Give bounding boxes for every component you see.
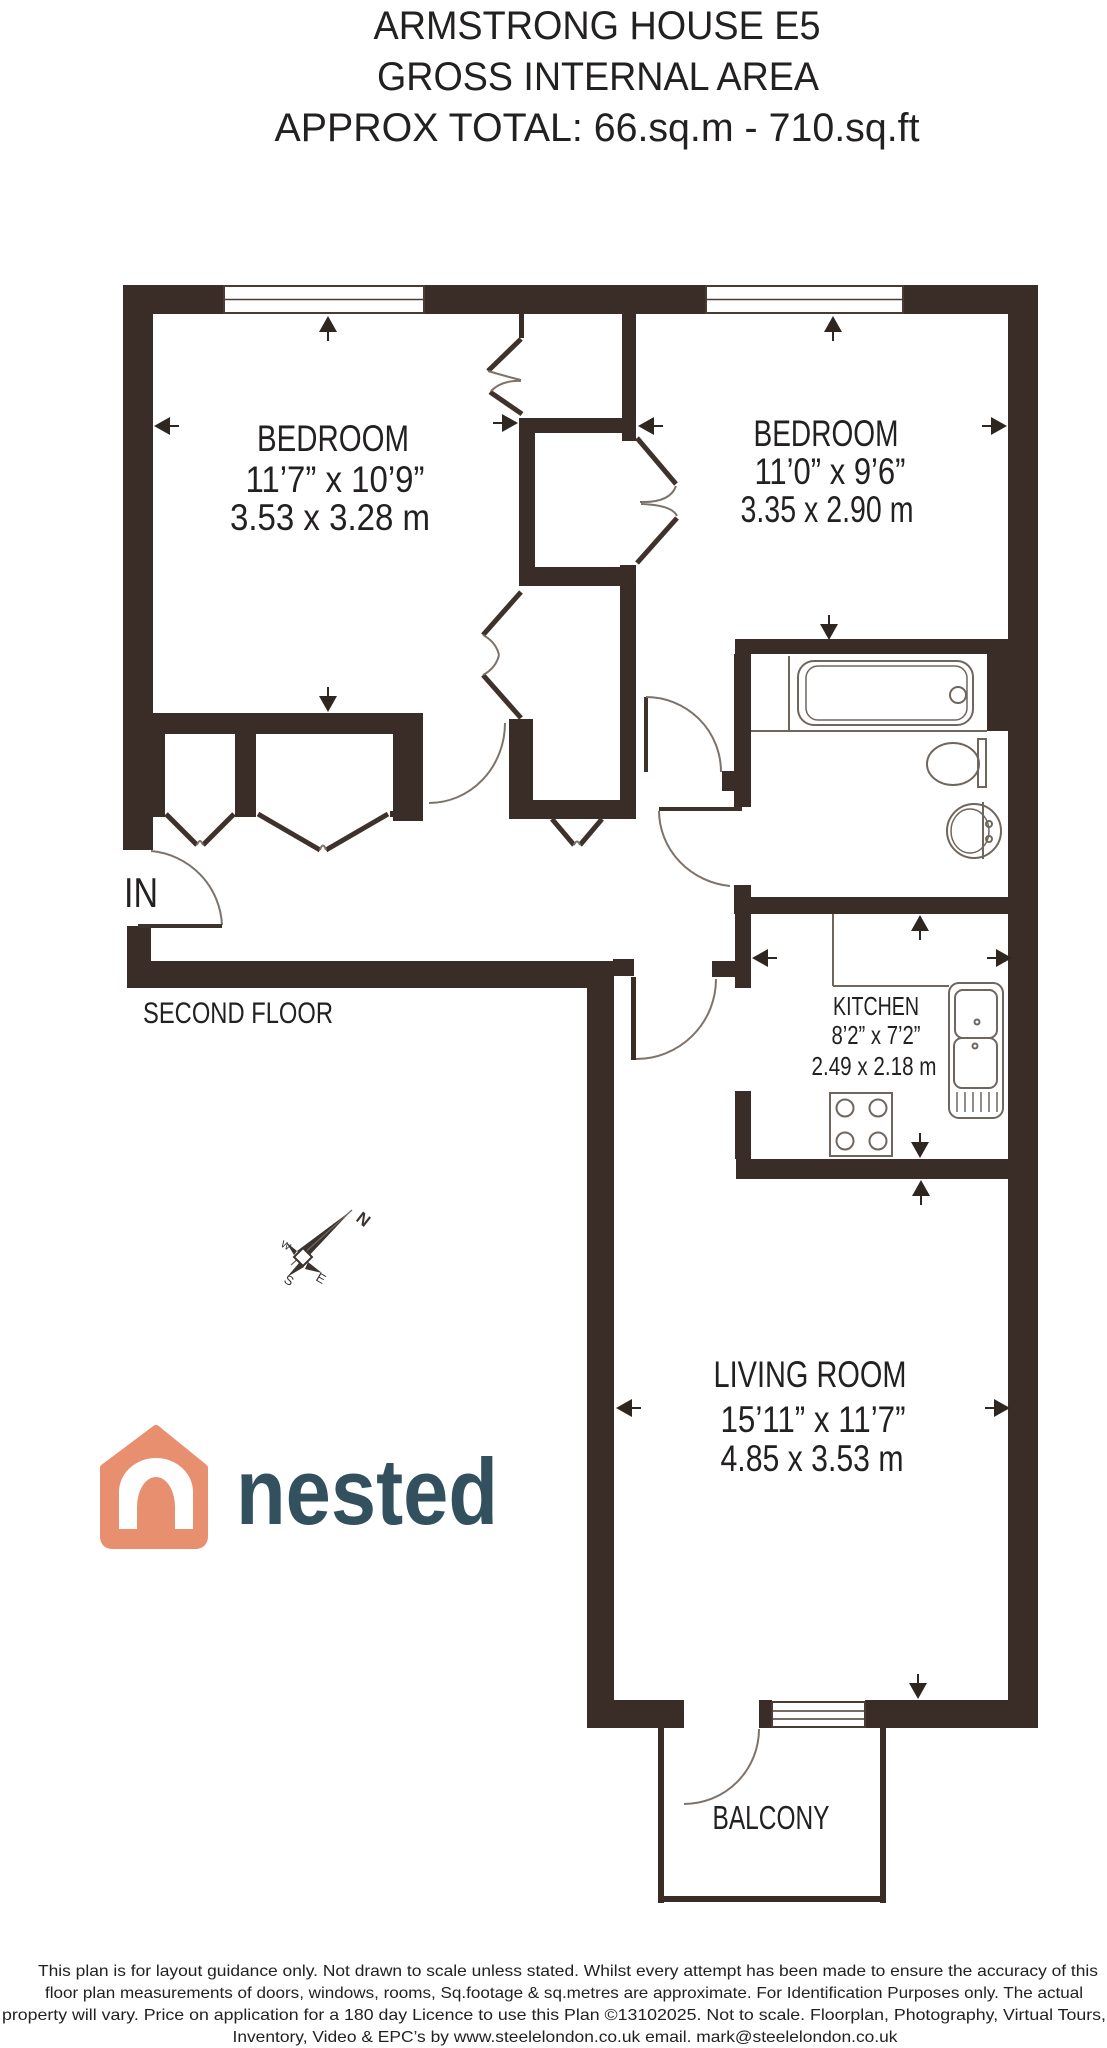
svg-text:2.49 x 2.18 m: 2.49 x 2.18 m	[812, 1051, 937, 1081]
svg-text:4.85 x 3.53 m: 4.85 x 3.53 m	[721, 1438, 904, 1479]
svg-text:11’7” x 10’9”: 11’7” x 10’9”	[246, 459, 425, 500]
svg-text:LIVING ROOM: LIVING ROOM	[714, 1354, 907, 1395]
svg-text:11’0” x 9’6”: 11’0” x 9’6”	[755, 451, 906, 492]
svg-text:nested: nested	[236, 1439, 498, 1544]
svg-text:BEDROOM: BEDROOM	[754, 413, 899, 454]
svg-text:15’11” x 11’7”: 15’11” x 11’7”	[721, 1399, 906, 1440]
svg-text:property will vary. Price on a: property will vary. Price on application…	[2, 2007, 1106, 2024]
svg-text:BALCONY: BALCONY	[713, 1799, 830, 1836]
svg-text:BEDROOM: BEDROOM	[257, 418, 409, 459]
svg-text:This plan is for layout guidan: This plan is for layout guidance only. N…	[38, 1963, 1098, 1980]
svg-text:IN: IN	[124, 869, 158, 916]
svg-text:GROSS INTERNAL AREA: GROSS INTERNAL AREA	[377, 55, 819, 99]
svg-text:SECOND FLOOR: SECOND FLOOR	[143, 997, 333, 1030]
svg-text:3.35 x 2.90 m: 3.35 x 2.90 m	[741, 489, 914, 530]
svg-text:8’2” x 7’2”: 8’2” x 7’2”	[832, 1020, 921, 1050]
svg-text:Inventory, Video & EPC’s by ww: Inventory, Video & EPC’s by www.steelelo…	[233, 2029, 899, 2046]
svg-text:ARMSTRONG HOUSE E5: ARMSTRONG HOUSE E5	[374, 4, 821, 48]
svg-text:floor plan measurements of doo: floor plan measurements of doors, window…	[45, 1985, 1083, 2002]
svg-text:APPROX TOTAL: 66.sq.m - 710.sq: APPROX TOTAL: 66.sq.m - 710.sq.ft	[275, 106, 920, 150]
svg-text:KITCHEN: KITCHEN	[833, 991, 919, 1021]
svg-text:3.53 x 3.28 m: 3.53 x 3.28 m	[230, 497, 430, 538]
